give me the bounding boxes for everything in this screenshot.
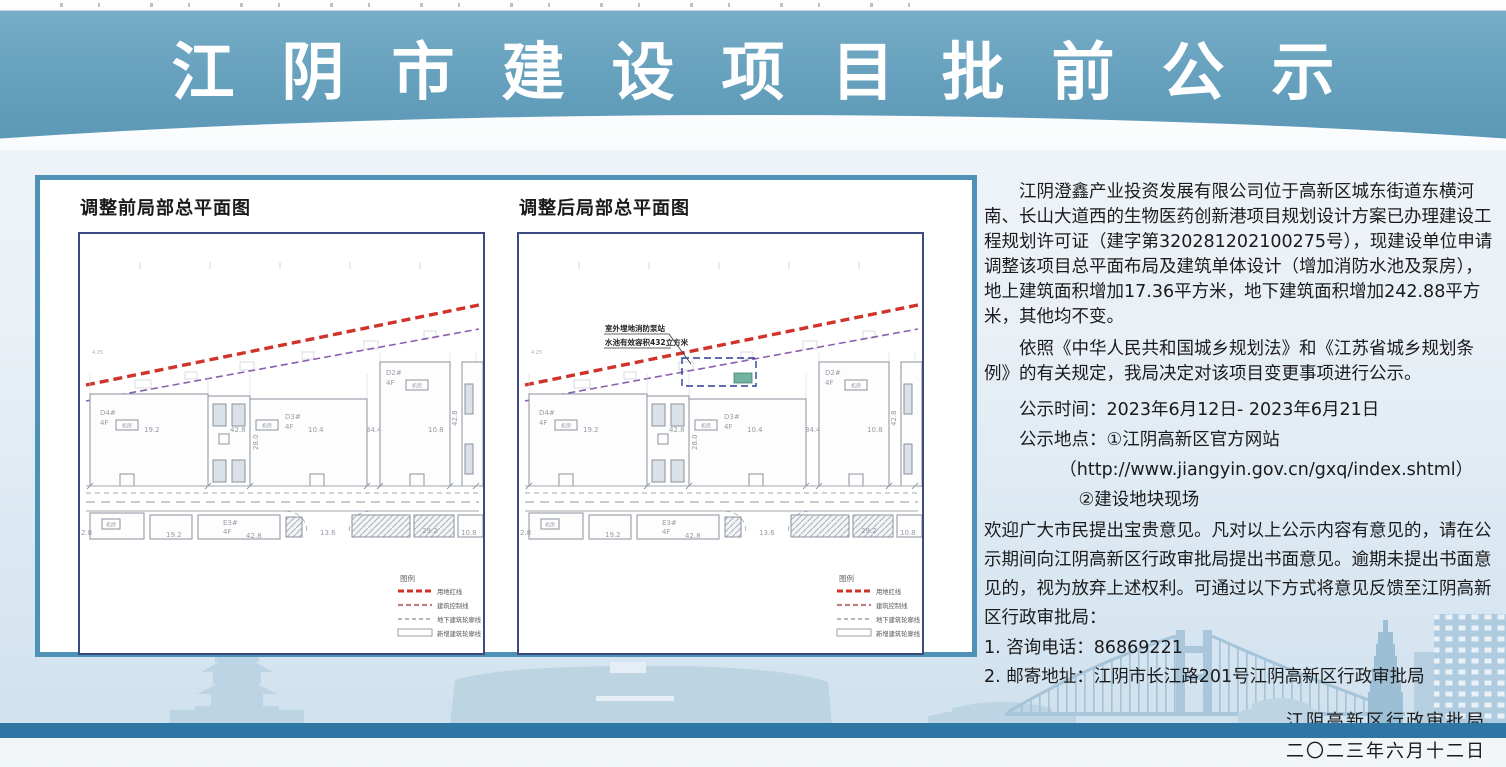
building-d3-floors: 4F: [724, 423, 732, 431]
legend-title: 图例: [400, 573, 415, 583]
legend-item: 地下建筑轮廓线: [876, 615, 921, 624]
building-d4-floors: 4F: [539, 419, 547, 427]
notice-text-block: 江阴澄鑫产业投资发展有限公司位于高新区城东街道东横河南、长山大道西的生物医药创新…: [984, 180, 1498, 767]
notice-paragraph-3: 欢迎广大市民提出宝贵意见。凡对以上公示内容有意见的，请在公示期间向江阴高新区行政…: [984, 517, 1498, 633]
notice-paragraph-1: 江阴澄鑫产业投资发展有限公司位于高新区城东街道东横河南、长山大道西的生物医药创新…: [984, 180, 1498, 330]
svg-text:2.8: 2.8: [520, 529, 531, 537]
room-label: 机房: [412, 383, 422, 390]
svg-text:29.2: 29.2: [422, 527, 438, 535]
svg-text:28.0: 28.0: [691, 434, 699, 450]
legend-item: 用地红线: [437, 587, 463, 596]
svg-text:2.8: 2.8: [81, 529, 92, 537]
building-d3-label: D3#: [724, 413, 740, 421]
figure-before-title: 调整前局部总平面图: [80, 194, 482, 220]
svg-text:10.8: 10.8: [461, 529, 477, 537]
signature-date: 二〇二三年六月十二日: [984, 737, 1486, 767]
svg-text:19.2: 19.2: [166, 531, 182, 539]
plan-legend: 图例 用地红线 建筑控制线 地下建筑轮廓线 新增建筑轮廓线: [398, 573, 482, 638]
building-d3-label: D3#: [285, 413, 301, 421]
notice-time-line: 公示时间：2023年6月12日- 2023年6月21日: [984, 395, 1498, 425]
new-pump-station-box: [734, 373, 752, 383]
notice-item-address: 2. 邮寄地址：江阴市长江路201号江阴高新区行政审批局: [984, 664, 1498, 691]
svg-text:42.8: 42.8: [246, 532, 262, 540]
misc-elevation-label: 4.25: [92, 350, 103, 356]
site-plan-drawing: 4.25: [519, 234, 922, 653]
figure-before: 调整前局部总平面图 4.25: [78, 194, 482, 655]
legend-item: 地下建筑轮廓线: [437, 615, 482, 624]
site-plan-drawing: 4.25: [80, 234, 483, 653]
svg-text:42.8: 42.8: [669, 426, 685, 434]
building-d4-label: D4#: [539, 409, 555, 417]
notice-place2-line: ②建设地块现场: [984, 485, 1498, 515]
building-e3-floors: 4F: [662, 528, 670, 536]
notice-place-line: 公示地点：①江阴高新区官方网站: [984, 425, 1498, 455]
building-d2-floors: 4F: [386, 379, 394, 387]
svg-text:42.8: 42.8: [451, 410, 459, 426]
building-e3-label: E3#: [223, 519, 238, 527]
bottom-blue-band: [0, 723, 1506, 738]
building-e3-floors: 4F: [223, 528, 231, 536]
svg-text:19.2: 19.2: [144, 426, 160, 434]
site-plan-after: 4.25: [517, 232, 924, 655]
stadium-icon: [450, 662, 832, 724]
building-d4-floors: 4F: [100, 419, 108, 427]
annotation-line2: 水池有效容积432立方米: [605, 337, 689, 347]
top-window-strip: [0, 0, 1506, 11]
building-d2-label: D2#: [386, 369, 402, 377]
strip-marks: [60, 3, 920, 7]
building-d2-floors: 4F: [825, 379, 833, 387]
svg-text:10.8: 10.8: [900, 529, 916, 537]
building-d3-floors: 4F: [285, 423, 293, 431]
legend-item: 用地红线: [876, 587, 902, 596]
room-label: 机房: [561, 423, 571, 430]
header-wave: [0, 115, 1506, 150]
svg-text:42.8: 42.8: [890, 410, 898, 426]
notice-item-phone: 1. 咨询电话：86869221: [984, 635, 1498, 662]
svg-text:29.2: 29.2: [861, 527, 877, 535]
drawings-panel: 调整前局部总平面图 4.25: [35, 175, 977, 657]
svg-text:10.4: 10.4: [747, 426, 763, 434]
legend-item: 建筑控制线: [876, 601, 908, 610]
figure-after-title: 调整后局部总平面图: [519, 194, 921, 220]
building-d4-label: D4#: [100, 409, 116, 417]
svg-text:34.4: 34.4: [366, 426, 382, 434]
misc-elevation-label: 4.25: [531, 350, 542, 356]
room-label: 机房: [851, 383, 861, 390]
notice-paragraph-2: 依照《中华人民共和国城乡规划法》和《江苏省城乡规划条例》的有关规定，我局决定对该…: [984, 337, 1498, 387]
svg-text:10.8: 10.8: [867, 426, 883, 434]
svg-text:10.8: 10.8: [428, 426, 444, 434]
main-buildings: 机房 机房 机房 D4# 4F D3# 4F D2# 4F: [529, 362, 922, 486]
svg-text:34.4: 34.4: [805, 426, 821, 434]
svg-text:42.8: 42.8: [230, 426, 246, 434]
lower-buildings: 机房 E3# 4F 2.8 19.2 42.8 13.6 29.2: [520, 513, 922, 540]
svg-text:42.8: 42.8: [685, 532, 701, 540]
legend-title: 图例: [839, 573, 854, 583]
svg-text:13.6: 13.6: [320, 529, 336, 537]
svg-text:19.2: 19.2: [605, 531, 621, 539]
room-label: 机房: [701, 423, 711, 430]
annotation-line1: 室外埋地消防泵站: [605, 323, 665, 333]
legend-item: 新增建筑轮廓线: [437, 629, 482, 638]
lower-buildings: 机房 E3# 4F 2.8 19.2 42.8 13.6 29.2: [81, 513, 483, 540]
plan-legend: 图例 用地红线 建筑控制线 地下建筑轮廓线 新增建筑轮廓线: [837, 573, 921, 638]
page-title: 江阴市建设项目批前公示: [0, 22, 1506, 113]
room-label: 机房: [262, 423, 272, 430]
figure-after: 调整后局部总平面图 4.25: [517, 194, 921, 655]
site-plan-before: 4.25: [78, 232, 485, 655]
room-label: 机房: [122, 423, 132, 430]
room-label: 机房: [106, 522, 116, 529]
main-buildings: 机房 机房 机房 D4# 4F D3# 4F D2# 4F: [90, 362, 483, 486]
legend-item: 新增建筑轮廓线: [876, 629, 921, 638]
svg-text:10.4: 10.4: [308, 426, 324, 434]
building-e3-label: E3#: [662, 519, 677, 527]
building-d2-label: D2#: [825, 369, 841, 377]
svg-text:13.6: 13.6: [759, 529, 775, 537]
notice-url-line: （http://www.jiangyin.gov.cn/gxq/index.sh…: [984, 455, 1498, 485]
legend-item: 建筑控制线: [437, 601, 469, 610]
svg-text:28.0: 28.0: [252, 434, 260, 450]
room-label: 机房: [545, 522, 555, 529]
svg-text:19.2: 19.2: [583, 426, 599, 434]
